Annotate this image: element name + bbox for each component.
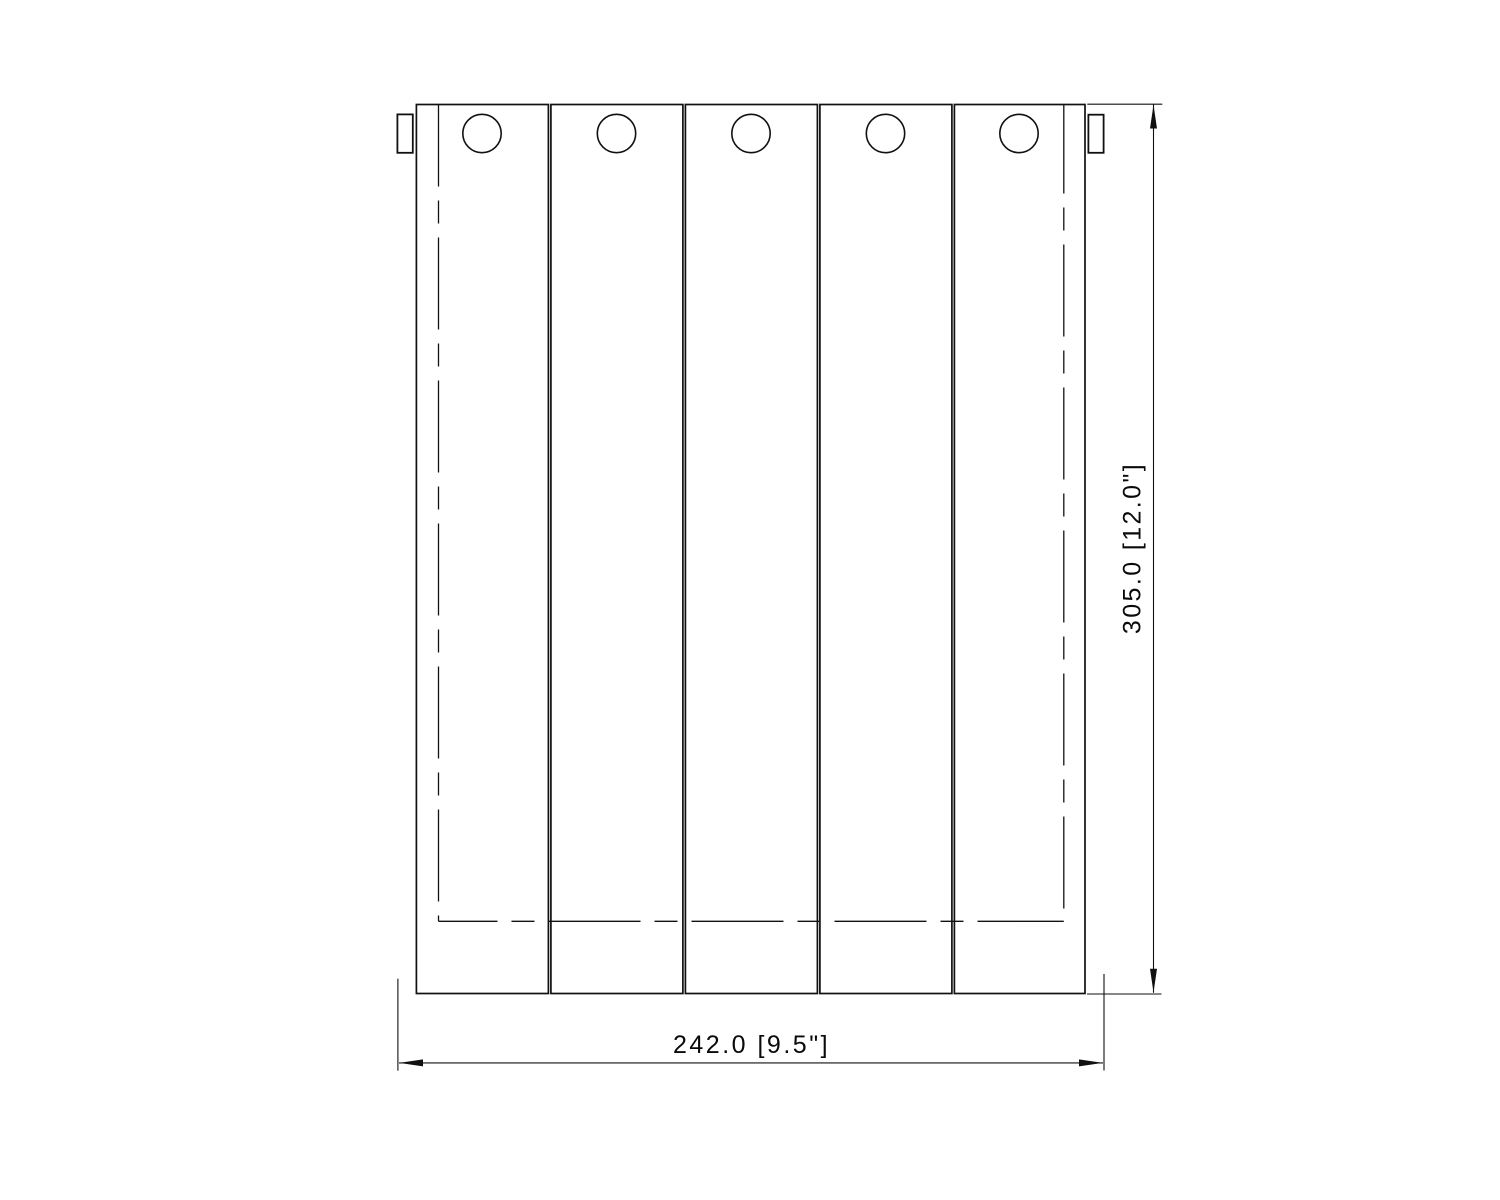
- svg-text:242.0 [9.5"]: 242.0 [9.5"]: [673, 1031, 830, 1059]
- svg-text:305.0 [12.0"]: 305.0 [12.0"]: [1119, 462, 1147, 634]
